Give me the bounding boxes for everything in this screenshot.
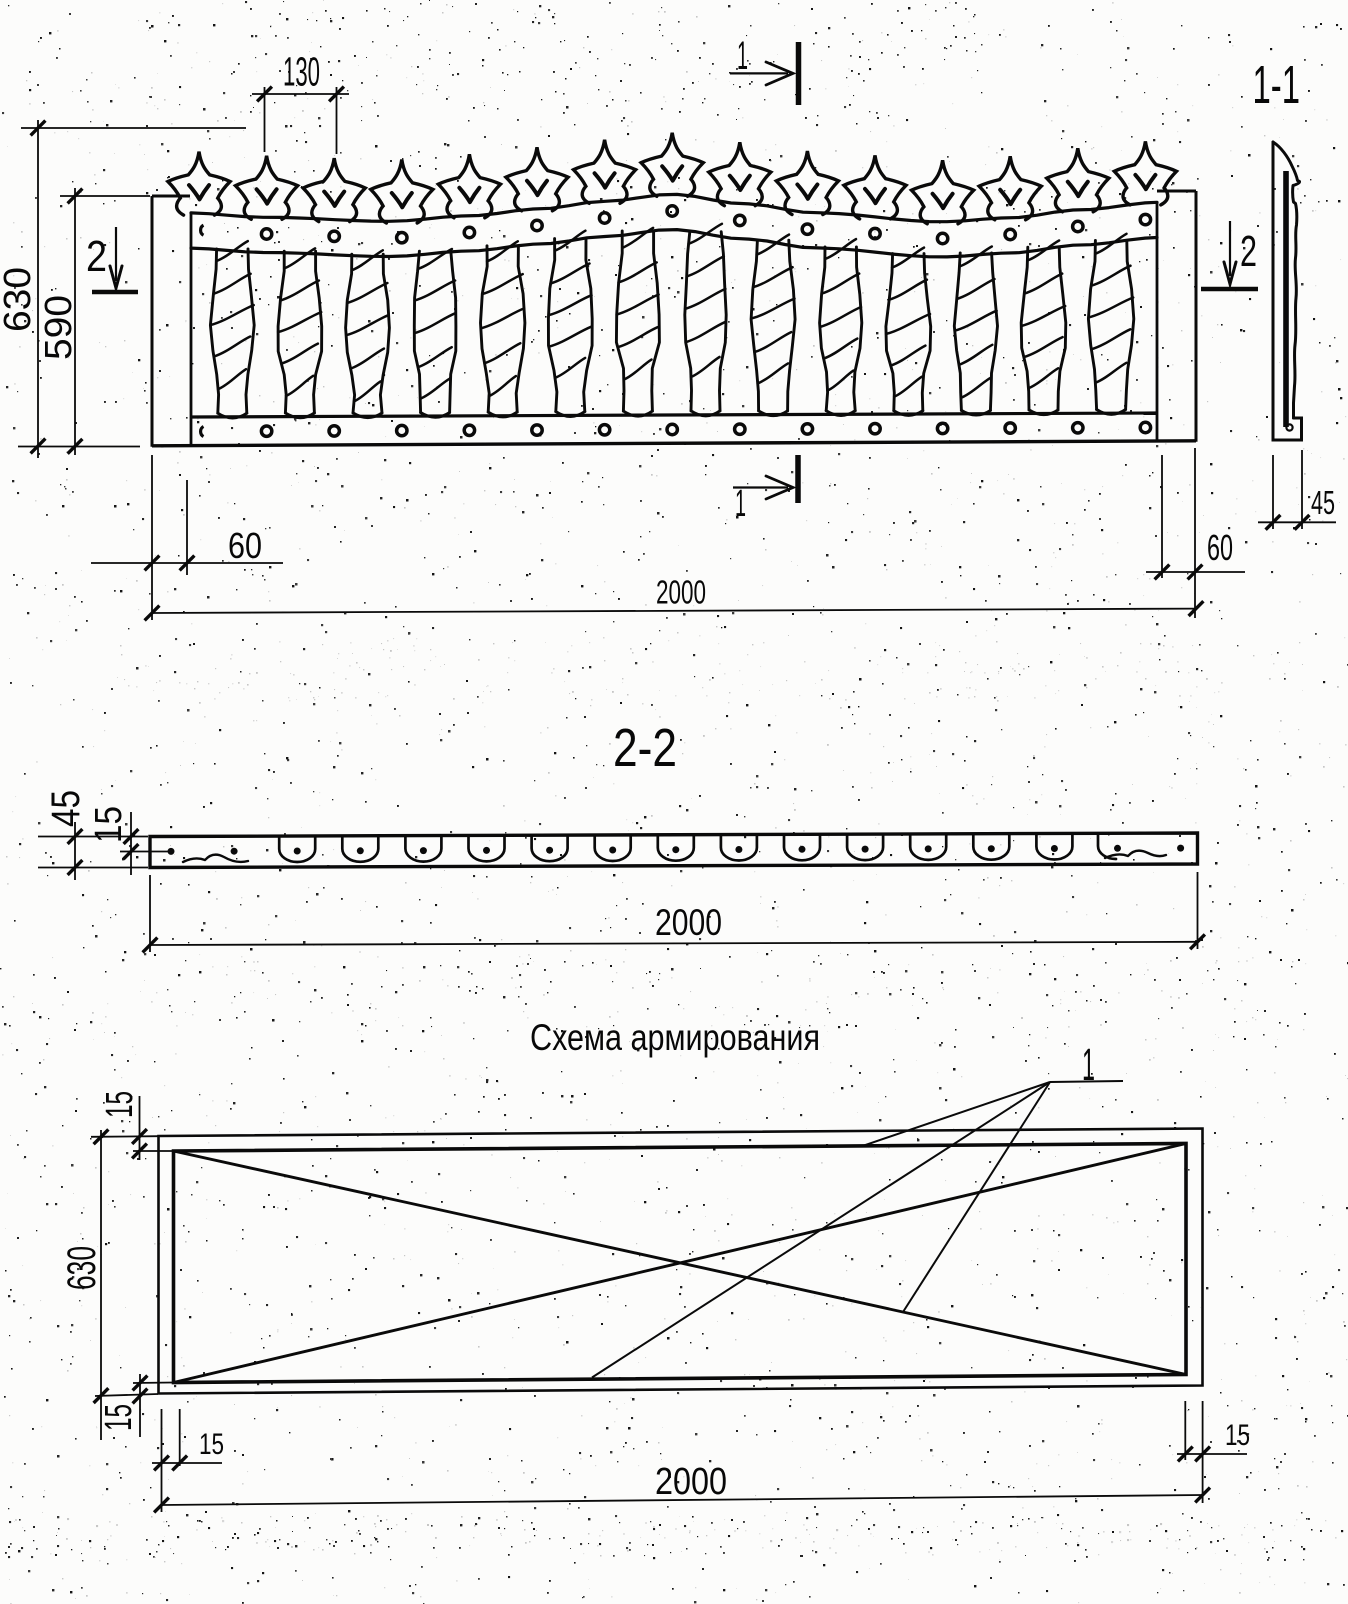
svg-text:630: 630 — [60, 1246, 104, 1290]
svg-text:2-2: 2-2 — [613, 718, 677, 778]
svg-text:130: 130 — [283, 49, 320, 95]
svg-text:2: 2 — [86, 232, 107, 281]
svg-text:2000: 2000 — [655, 902, 722, 943]
svg-text:2000: 2000 — [655, 1461, 727, 1503]
svg-text:1: 1 — [737, 34, 748, 78]
svg-text:60: 60 — [228, 525, 262, 566]
svg-text:45: 45 — [1311, 485, 1335, 522]
svg-text:2000: 2000 — [656, 575, 706, 612]
svg-text:Схема армирования: Схема армирования — [530, 1017, 820, 1058]
svg-text:1: 1 — [1082, 1039, 1095, 1090]
svg-text:2: 2 — [1240, 227, 1257, 276]
svg-text:15: 15 — [88, 806, 130, 843]
svg-text:15: 15 — [199, 1428, 224, 1461]
svg-text:15: 15 — [98, 1404, 140, 1431]
svg-text:630: 630 — [0, 267, 39, 332]
svg-text:60: 60 — [1207, 527, 1233, 568]
svg-text:1-1: 1-1 — [1253, 55, 1301, 115]
svg-text:1: 1 — [735, 483, 746, 525]
svg-text:590: 590 — [38, 295, 80, 360]
svg-text:15: 15 — [1225, 1419, 1250, 1452]
svg-text:45: 45 — [44, 790, 88, 827]
svg-text:15: 15 — [99, 1091, 141, 1118]
